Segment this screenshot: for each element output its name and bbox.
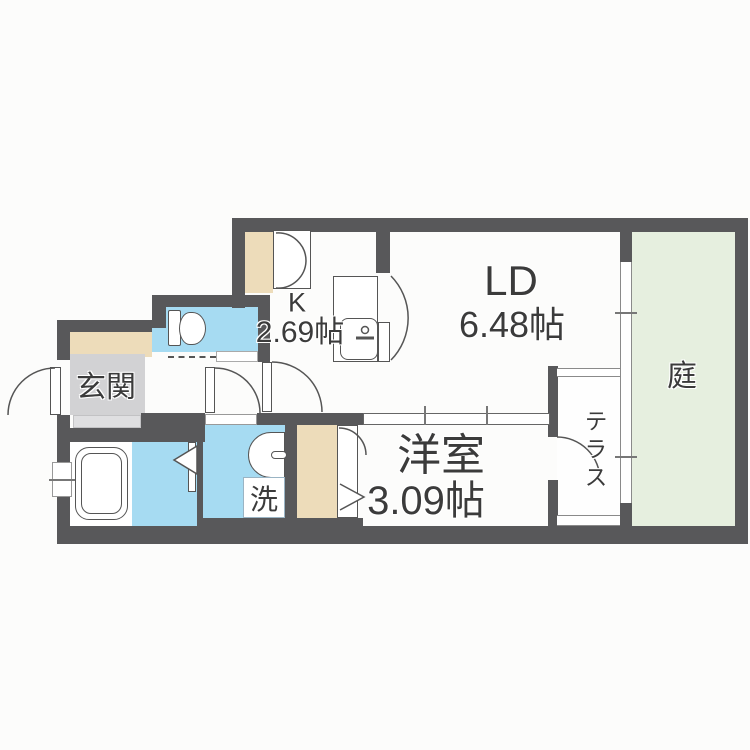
wall-left-lower bbox=[57, 497, 70, 526]
kitchen-ld-door-arc bbox=[391, 276, 408, 360]
sliding-door-tick-2 bbox=[486, 406, 488, 425]
closet-top-floor bbox=[243, 227, 273, 293]
wall-ld-garden-top bbox=[620, 232, 632, 262]
toilet-door-pocket bbox=[216, 351, 258, 362]
wall-garden-stub bbox=[620, 503, 632, 526]
entrance-step bbox=[73, 415, 141, 428]
kitchen-sink bbox=[340, 318, 378, 360]
closet-bottom-floor bbox=[297, 425, 337, 518]
bath-window-tick bbox=[49, 479, 75, 481]
kitchen-ld-door-leaf bbox=[378, 322, 390, 362]
laundry-box: 洗 bbox=[243, 477, 285, 518]
wall-kitchen-ld bbox=[376, 232, 390, 273]
wall-washroom-closet bbox=[285, 425, 297, 518]
bathtub-inner bbox=[81, 453, 122, 514]
garden-label: 庭 bbox=[667, 351, 697, 395]
washroom-door-leaf bbox=[205, 367, 215, 413]
terrace-label: テラス bbox=[577, 409, 611, 493]
bath-door-panel bbox=[188, 442, 196, 492]
washroom-door-sill bbox=[205, 414, 257, 425]
window-ld-terrace bbox=[557, 368, 620, 377]
railing-terrace-garden bbox=[620, 376, 632, 503]
entrance-label: 玄関 bbox=[76, 362, 136, 406]
washroom-door-arc bbox=[215, 368, 260, 413]
front-door-leaf bbox=[50, 367, 61, 415]
closet-bottom-doors bbox=[337, 425, 358, 518]
washbasin-handle bbox=[271, 451, 287, 459]
wall-right-fence bbox=[735, 232, 748, 526]
front-door-arc bbox=[8, 368, 55, 415]
western-room-area: 3.09帖 bbox=[367, 468, 485, 526]
wall-hall-step-side bbox=[141, 413, 205, 428]
wall-entrance-top bbox=[57, 320, 152, 332]
closet-top-doors bbox=[273, 230, 311, 289]
laundry-label: 洗 bbox=[250, 478, 278, 518]
hall-kitchen-door-arc bbox=[272, 362, 322, 412]
window-garden-tick bbox=[615, 312, 637, 314]
wall-bottom bbox=[57, 526, 748, 544]
window-ld-garden bbox=[620, 262, 632, 376]
ld-room-area: 6.48帖 bbox=[459, 296, 565, 348]
wall-left-upper bbox=[57, 332, 70, 360]
toilet-door-dashed bbox=[168, 352, 216, 358]
wall-bath-divider bbox=[197, 442, 203, 526]
wall-toilet-top bbox=[152, 295, 270, 307]
railing-terrace-bottom bbox=[557, 515, 620, 526]
hall-kitchen-door-leaf bbox=[262, 362, 272, 412]
wall-left-mid bbox=[57, 415, 70, 462]
kitchen-area: 2.69帖 bbox=[256, 307, 344, 351]
wall-bathroom-top bbox=[70, 428, 205, 442]
floor-plan: 洗 LD 6.48帖 K 2.69帖 洋室 3.09帖 玄関 庭 テラス bbox=[0, 0, 750, 750]
toilet-bowl bbox=[179, 312, 206, 345]
toilet-room-notch bbox=[152, 328, 166, 352]
wall-toilet-left bbox=[152, 307, 166, 328]
railing-garden-tick bbox=[615, 456, 637, 458]
wall-hall-bottom bbox=[257, 413, 363, 425]
wall-below-washroom bbox=[203, 518, 363, 526]
